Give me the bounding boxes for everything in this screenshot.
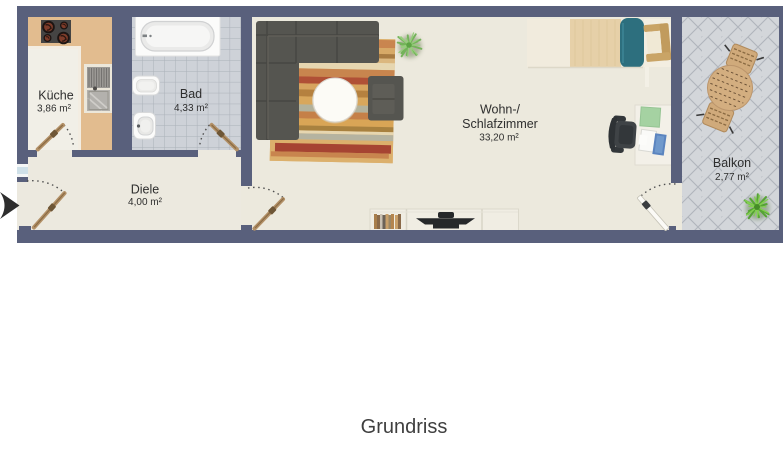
svg-text:4,33 m²: 4,33 m²: [174, 103, 209, 114]
svg-text:Küche: Küche: [38, 89, 73, 103]
svg-text:Grundriss: Grundriss: [361, 416, 448, 438]
svg-text:Balkon: Balkon: [713, 156, 751, 170]
svg-text:Bad: Bad: [180, 87, 202, 101]
svg-text:Schlafzimmer: Schlafzimmer: [462, 117, 538, 131]
svg-text:3,86 m²: 3,86 m²: [37, 104, 72, 115]
svg-text:Wohn-/: Wohn-/: [480, 103, 521, 117]
svg-text:33,20 m²: 33,20 m²: [479, 133, 519, 144]
svg-text:4,00 m²: 4,00 m²: [128, 197, 163, 208]
svg-text:2,77 m²: 2,77 m²: [715, 172, 750, 183]
svg-text:Diele: Diele: [131, 183, 160, 197]
